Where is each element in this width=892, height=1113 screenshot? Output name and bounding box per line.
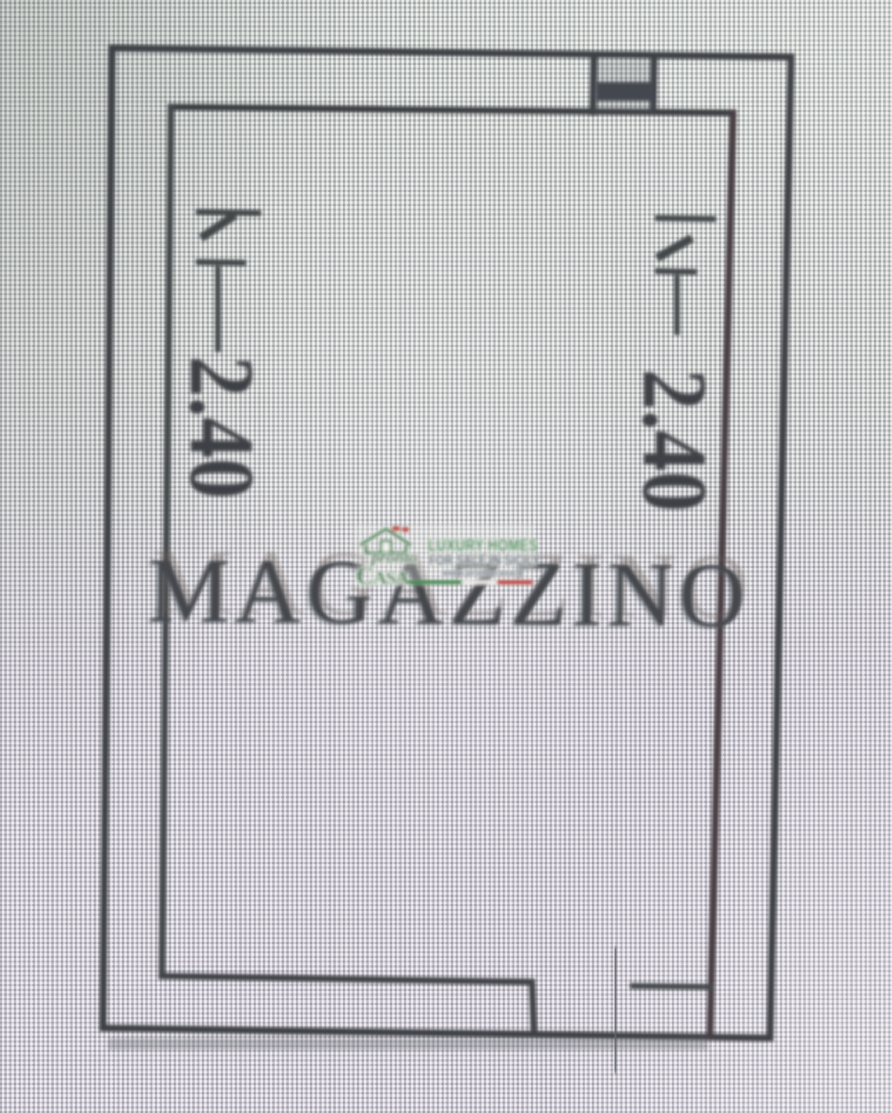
svg-text:www.prontocasa.it: www.prontocasa.it — [441, 567, 523, 579]
svg-text:FOR SALE IN SICILY: FOR SALE IN SICILY — [429, 551, 540, 568]
svg-text:2.40: 2.40 — [624, 369, 726, 512]
svg-text:pronto: pronto — [369, 548, 417, 567]
svg-text:2.40: 2.40 — [171, 356, 273, 499]
svg-text:CASA: CASA — [356, 563, 409, 590]
